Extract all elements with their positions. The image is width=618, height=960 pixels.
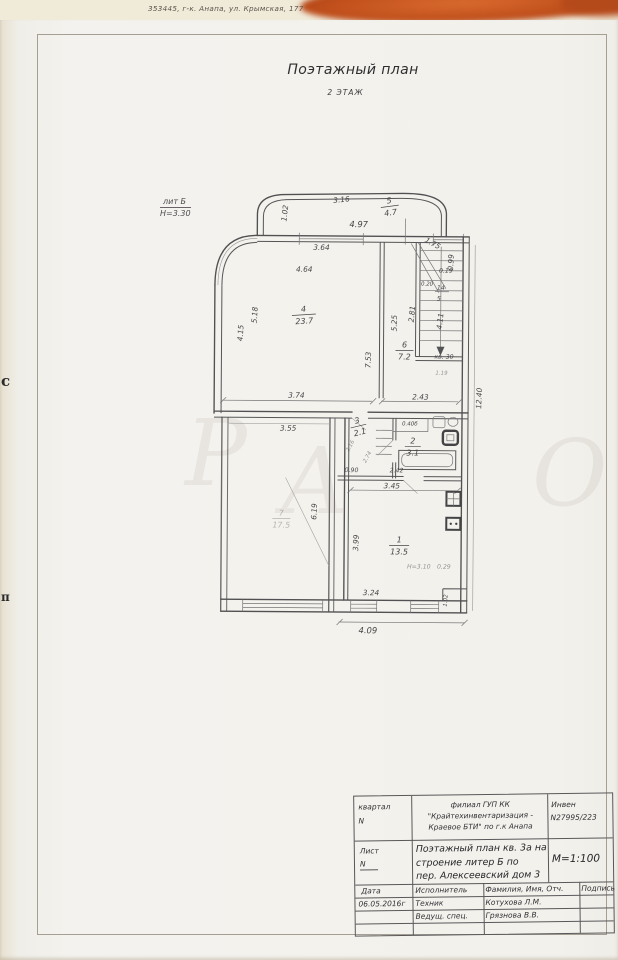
dim-label: 2.42 (390, 467, 404, 474)
dim-label: 0.29 (437, 564, 451, 571)
svg-text:7.2: 7.2 (398, 352, 411, 361)
svg-text:1: 1 (397, 535, 402, 544)
scanned-document: { "scan": { "address_line": "353445, г-к… (0, 0, 618, 960)
svg-text:2: 2 (410, 436, 415, 445)
technician-name: Котухова Л.М. (485, 897, 541, 908)
svg-text:2.1: 2.1 (353, 427, 367, 439)
doc-title-line1: Поэтажный план кв. 3а на (416, 841, 550, 856)
svg-text:4: 4 (301, 305, 307, 314)
room-label-bathroom: 2 3.1 (405, 436, 421, 457)
dim-label: 4.11 (435, 313, 446, 330)
dim-label: 6.19 (309, 503, 319, 520)
dim-label: 2.16 (345, 439, 356, 453)
sheet-label: Лист (360, 846, 379, 856)
room-label-hall: 6 7.2 (395, 340, 413, 361)
dim-label: 3.64 (313, 243, 330, 252)
dim-label: 2.43 (412, 393, 429, 402)
inventory-label: Инвен (551, 800, 576, 810)
kitchen (344, 418, 461, 601)
dim-label: 12.40 (474, 387, 484, 409)
dim-label: 5 (437, 296, 441, 303)
dim-label: 14 (437, 285, 445, 292)
room-label-kitchen: 1 13.5 (389, 535, 409, 556)
left-wall (214, 235, 257, 413)
dim-label: 0.90 (345, 467, 359, 474)
dim-label: 4.64 (296, 265, 313, 274)
date-value: 06.05.2016г (358, 899, 405, 910)
role-technician: Техник (415, 898, 443, 908)
dim-label: 4.15 (236, 324, 246, 341)
dim-label: 1.02 (443, 594, 450, 607)
block-number: N (358, 816, 364, 826)
svg-text:3: 3 (354, 416, 361, 426)
corridor-closet (376, 430, 392, 454)
dim-label: 5.18 (250, 306, 260, 323)
dim-label: 3.55 (280, 424, 297, 433)
dim-label: 1.75 (423, 235, 442, 251)
dim-label: 5.25 (390, 314, 399, 331)
dim-label: 2.81 (407, 305, 418, 322)
dim-label: 4.09 (358, 625, 377, 635)
scale-value: М=1:100 (552, 854, 600, 865)
dim-label: 7.53 (363, 351, 373, 368)
toilet-inner (447, 435, 454, 441)
room-label-adjacent: 7 17.5 (272, 509, 290, 530)
organization-name: филиал ГУП КК "Крайтехинвентаризация - К… (413, 798, 547, 833)
apartment-30-label: кв. 30 (434, 354, 453, 361)
dim-label: 3.99 (351, 534, 361, 551)
dim-label: 2.74 (362, 450, 373, 464)
dim-label: 0.40б (402, 421, 418, 427)
dim-label: 1.19 (435, 371, 448, 377)
col-executor: Исполнитель (415, 885, 467, 896)
col-sign: Подпись (581, 883, 615, 893)
dim-label: 4.97 (349, 219, 368, 229)
dim-label: 3.16 (333, 194, 351, 205)
lower-top-wall (214, 411, 468, 431)
svg-text:7: 7 (279, 509, 285, 518)
svg-text:23.7: 23.7 (295, 316, 314, 326)
svg-text:17.5: 17.5 (272, 521, 290, 530)
role-lead-spec: Ведущ. спец. (416, 911, 468, 922)
col-name: Фамилия, Имя, Отч. (485, 884, 563, 895)
dim-label: 1.02 (279, 204, 290, 222)
org-line3: Краевое БТИ" по г.к Анапа (413, 820, 547, 833)
dim-label: 3.74 (288, 391, 305, 400)
svg-text:3.1: 3.1 (406, 448, 419, 457)
document-title: Поэтажный план кв. 3а на строение литер … (416, 841, 550, 883)
height-note: Н=3.10 (407, 563, 431, 570)
col-date: Дата (361, 886, 381, 896)
dim-label: 3.24 (363, 588, 380, 597)
doc-title-line3: пер. Алексеевский дом 3 (416, 868, 550, 883)
svg-text:13.5: 13.5 (390, 547, 408, 556)
block-label: квартал (358, 802, 390, 812)
svg-text:4.7: 4.7 (384, 207, 399, 218)
dim-label: 3.45 (384, 481, 401, 490)
lead-spec-name: Грязнова В.В. (486, 910, 540, 921)
dim-label: 0.20 (421, 282, 434, 288)
right-wall (461, 237, 470, 613)
sheet-number: N (360, 859, 378, 870)
dim-label: 0.19 (439, 268, 453, 275)
svg-text:5: 5 (386, 196, 392, 206)
room-label-living: 4 23.7 (291, 304, 316, 326)
inner-wall-room4 (379, 242, 384, 398)
toilet-icon (443, 431, 458, 445)
appliance-icon (446, 518, 460, 530)
svg-text:6: 6 (402, 340, 407, 349)
title-block: квартал N филиал ГУП КК "Крайтехинвентар… (353, 792, 615, 936)
inventory-number: N27995/223 (550, 813, 596, 824)
